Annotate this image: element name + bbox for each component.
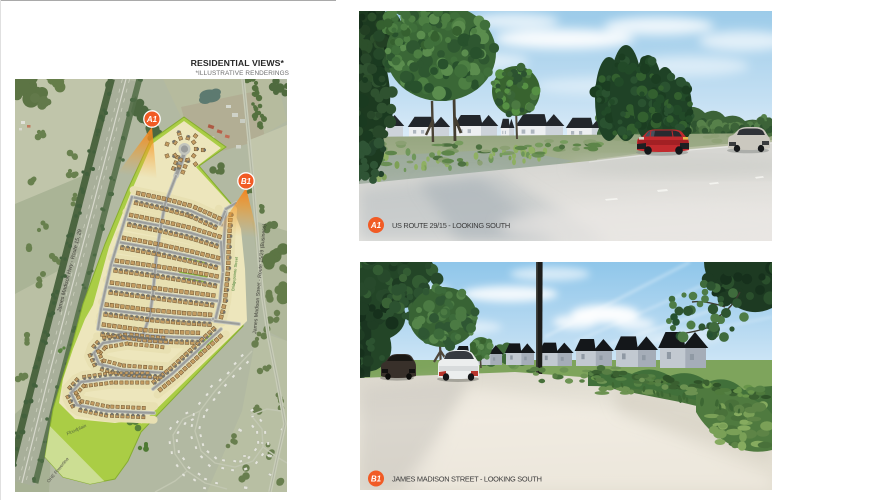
svg-text:B1: B1 <box>371 475 382 484</box>
svg-text:US ROUTE 29/15 - LOOKING SOUTH: US ROUTE 29/15 - LOOKING SOUTH <box>392 221 510 230</box>
svg-text:A1: A1 <box>146 115 158 124</box>
svg-text:B1: B1 <box>241 177 252 186</box>
svg-text:JAMES MADISON STREET - LOOKING: JAMES MADISON STREET - LOOKING SOUTH <box>392 475 542 484</box>
svg-text:A1: A1 <box>370 221 382 230</box>
